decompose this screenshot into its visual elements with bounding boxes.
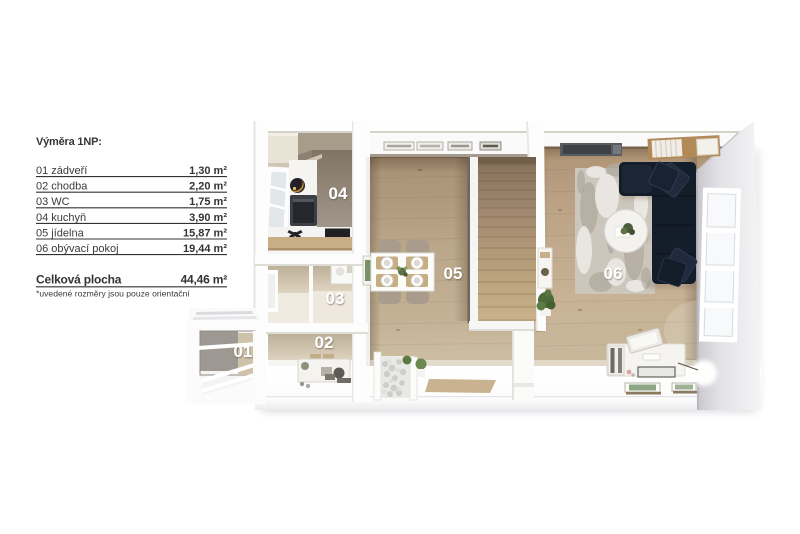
svg-text:03: 03 [326,289,345,308]
svg-text:06: 06 [604,264,623,283]
svg-text:19,44 m²: 19,44 m² [183,243,227,255]
svg-text:Celková plocha: Celková plocha [36,273,122,287]
svg-text:Výměra 1NP:: Výměra 1NP: [36,136,102,148]
svg-text:03 WC: 03 WC [36,196,70,208]
svg-text:02: 02 [315,333,334,352]
svg-text:04: 04 [329,184,348,203]
svg-text:44,46 m²: 44,46 m² [181,273,228,287]
svg-text:01 zádveří: 01 zádveří [36,165,87,177]
svg-text:05: 05 [444,264,463,283]
svg-text:15,87 m²: 15,87 m² [183,227,227,239]
svg-text:*uvedené rozměry jsou pouze or: *uvedené rozměry jsou pouze orientační [36,289,190,299]
svg-text:05 jídelna: 05 jídelna [36,227,85,239]
svg-text:06 obývací pokoj: 06 obývací pokoj [36,243,119,255]
svg-text:02 chodba: 02 chodba [36,181,88,193]
svg-text:2,20 m²: 2,20 m² [189,181,227,193]
svg-text:04 kuchyň: 04 kuchyň [36,212,86,224]
svg-text:3,90 m²: 3,90 m² [189,212,227,224]
svg-text:1,75 m²: 1,75 m² [189,196,227,208]
svg-text:01: 01 [234,342,253,361]
svg-text:1,30 m²: 1,30 m² [189,165,227,177]
